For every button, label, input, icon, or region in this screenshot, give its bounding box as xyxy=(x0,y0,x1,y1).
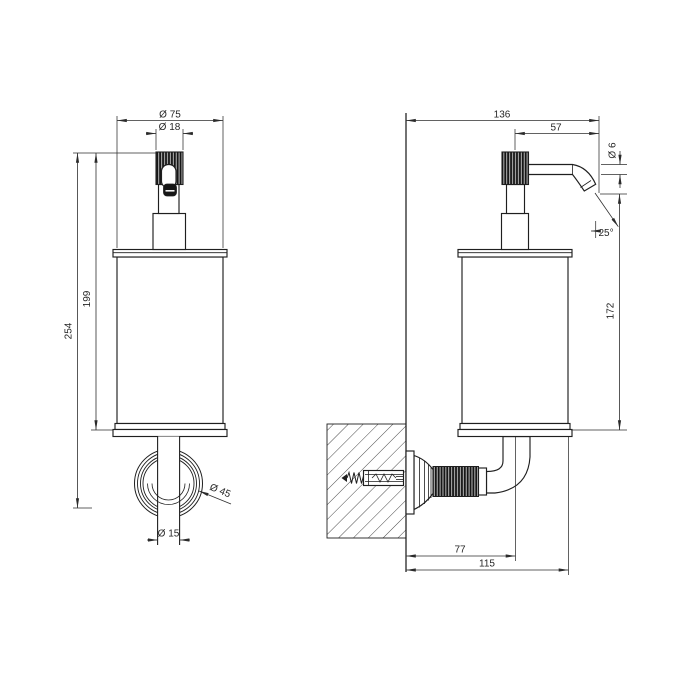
dim-wall-flange-diameter: Ø 45 xyxy=(199,482,232,504)
technical-drawing-page: Ø 75 Ø 18 254 199 Ø 45 Ø 15 xyxy=(0,0,700,700)
dim-label-spout-angle: 25° xyxy=(599,228,614,239)
dim-stem-diameter: Ø 15 xyxy=(147,529,190,541)
front-view: Ø 75 Ø 18 254 199 Ø 45 Ø 15 xyxy=(64,110,233,546)
bottle-top-flange-side xyxy=(458,250,572,258)
dim-label-pump-cap-diameter: Ø 18 xyxy=(159,122,181,133)
bottle-top-flange-front xyxy=(113,250,227,258)
pump-knob-side xyxy=(502,152,529,185)
bracket-elbow-tube xyxy=(487,437,531,494)
dim-label-stem-diameter: Ø 15 xyxy=(158,529,180,540)
bottle-bottom-flange-2-side xyxy=(458,430,572,437)
dim-label-total-depth: 136 xyxy=(494,110,511,121)
side-view: 136 57 Ø 6 25° 172 77 xyxy=(327,110,627,576)
bracket-grip-knurled xyxy=(433,467,479,497)
pump-neck-side xyxy=(507,185,525,214)
dim-label-side-body-height: 172 xyxy=(606,302,617,319)
pump-collar-front xyxy=(153,214,186,250)
dim-label-bracket-depth: 77 xyxy=(454,545,466,556)
dim-label-body-diameter: Ø 75 xyxy=(159,110,181,121)
dim-label-spout-outlet-diameter: Ø 6 xyxy=(608,142,619,159)
bottle-bottom-flange-1-side xyxy=(460,424,570,430)
dim-spout-reach: 57 xyxy=(515,123,599,151)
pump-collar-side xyxy=(502,214,529,250)
dim-pump-cap-diameter: Ø 18 xyxy=(146,122,193,150)
dispenser-technical-drawing: Ø 75 Ø 18 254 199 Ø 45 Ø 15 xyxy=(0,0,700,700)
bottle-bottom-flange-2-front xyxy=(113,430,227,437)
dim-spout-outlet-diameter: Ø 6 xyxy=(601,142,627,188)
dim-label-spout-reach: 57 xyxy=(550,123,562,134)
spout-side xyxy=(528,165,596,192)
bottle-body-side xyxy=(462,257,568,424)
dim-label-overall-depth: 115 xyxy=(479,559,495,570)
bottle-body-front xyxy=(117,257,223,424)
dim-label-total-height: 254 xyxy=(64,322,75,339)
bottle-bottom-flange-1-front xyxy=(115,424,225,430)
wall-bracket-escutcheon xyxy=(406,451,433,514)
dim-label-wall-flange-diameter: Ø 45 xyxy=(208,482,233,500)
dim-label-body-height: 199 xyxy=(82,290,93,307)
dim-overall-depth: 115 xyxy=(406,437,569,575)
dim-spout-angle: 25° xyxy=(591,193,618,239)
dim-body-height: 199 xyxy=(82,153,113,430)
bracket-ring xyxy=(479,468,487,495)
